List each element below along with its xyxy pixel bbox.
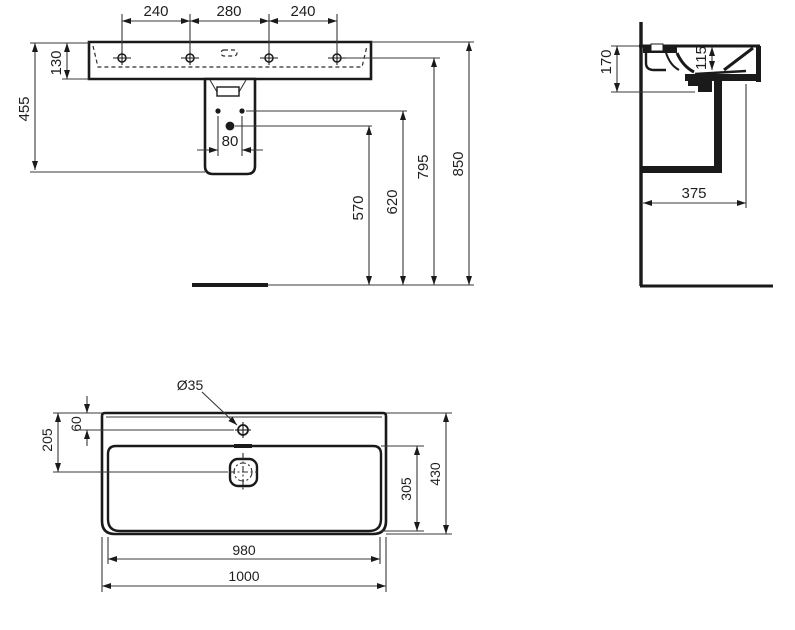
dim-label-tap-hole-diameter: Ø35 bbox=[177, 377, 204, 393]
dim-label-rim-to-floor: 850 bbox=[450, 151, 467, 176]
fixing-hole-dot bbox=[215, 108, 220, 113]
dim-label-tap-hole-from-back: 60 bbox=[68, 416, 84, 432]
dim-label-front-height: 170 bbox=[598, 49, 615, 74]
deck-support-outer bbox=[677, 53, 694, 72]
front-view: 240 280 240 130 455 80 570 620 795 850 bbox=[16, 3, 474, 285]
drawing-canvas: 240 280 240 130 455 80 570 620 795 850 bbox=[0, 0, 795, 630]
dim-label-pitch-left: 240 bbox=[143, 3, 168, 20]
dim-label-projection: 375 bbox=[681, 185, 706, 202]
dim-label-bowl-width: 980 bbox=[232, 542, 256, 558]
bowl-inner-bottom bbox=[695, 71, 746, 74]
side-view: 170 115 375 bbox=[598, 22, 773, 286]
dim-label-bowl-inner-depth: 115 bbox=[693, 46, 710, 70]
dim-label-basin-height: 130 bbox=[48, 50, 65, 75]
dim-label-tap-holes-to-floor: 795 bbox=[415, 154, 432, 179]
technical-drawing-page: 240 280 240 130 455 80 570 620 795 850 bbox=[0, 0, 795, 630]
dim-label-bolt-spacing: 80 bbox=[222, 133, 239, 150]
dim-label-overall-width: 1000 bbox=[228, 568, 259, 584]
waste-pipe-vertical bbox=[714, 81, 722, 173]
waste-pipe-elbow bbox=[642, 166, 722, 173]
back-shelf-section bbox=[646, 53, 666, 70]
dim-label-drain-from-back: 205 bbox=[39, 428, 55, 452]
outlet-dot bbox=[226, 122, 235, 131]
dim-label-fixings-to-floor: 620 bbox=[384, 189, 401, 214]
dim-label-overall-height: 455 bbox=[16, 96, 33, 121]
plan-view: Ø35 60 205 305 430 98 bbox=[39, 377, 452, 592]
drain-boss-section bbox=[688, 81, 712, 92]
overflow-step-notch bbox=[747, 63, 755, 71]
dim-label-bowl-front-back: 305 bbox=[398, 477, 414, 501]
dim-label-pitch-center: 280 bbox=[216, 3, 241, 20]
tap-hole-section bbox=[651, 44, 663, 51]
basin-outline-front bbox=[89, 42, 371, 79]
drain-funnel-mouth bbox=[217, 87, 239, 96]
dim-label-pitch-right: 240 bbox=[290, 3, 315, 20]
fixing-hole-dot bbox=[239, 108, 244, 113]
dim-label-outlet-to-floor: 570 bbox=[350, 195, 367, 220]
dim-label-overall-depth: 430 bbox=[427, 462, 443, 486]
